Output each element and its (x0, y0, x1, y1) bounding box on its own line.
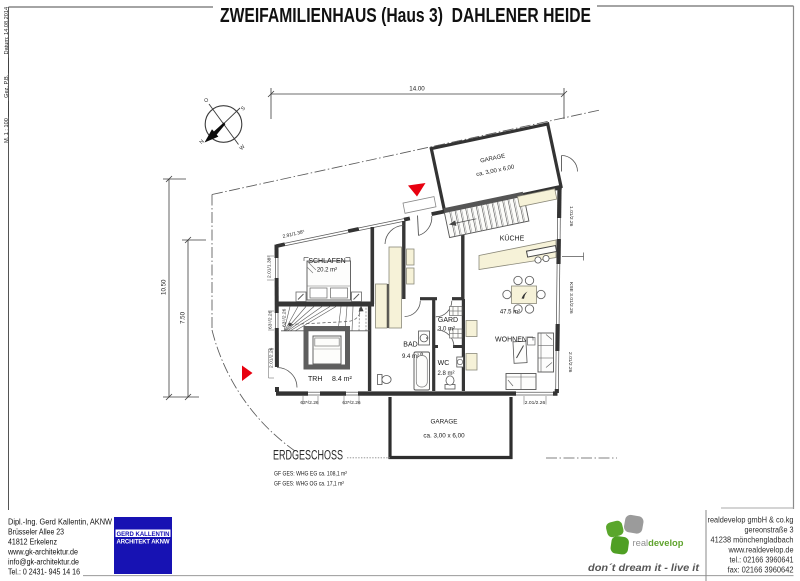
svg-text:47.5 m²: 47.5 m² (500, 310, 520, 316)
svg-text:www.realdevelop.de: www.realdevelop.de (728, 546, 794, 555)
svg-text:SCHLAFEN: SCHLAFEN (308, 258, 345, 265)
svg-text:ca. 3,00 x 6,00: ca. 3,00 x 6,00 (423, 433, 465, 440)
svg-text:realdevelop: realdevelop (633, 538, 684, 549)
svg-text:2.01/2.26: 2.01/2.26 (268, 347, 274, 368)
svg-text:41238 mönchengladbach: 41238 mönchengladbach (711, 536, 794, 545)
svg-text:info@gk-architektur.de: info@gk-architektur.de (8, 558, 79, 567)
svg-text:WC: WC (438, 360, 450, 367)
svg-text:63⁵/2.26: 63⁵/2.26 (342, 400, 361, 406)
svg-text:ARCHITEKT AKNW: ARCHITEKT AKNW (117, 540, 170, 546)
svg-text:2.01/2.26: 2.01/2.26 (525, 400, 546, 406)
svg-text:8.4 m²: 8.4 m² (332, 376, 353, 383)
svg-text:20.2 m²: 20.2 m² (317, 268, 337, 274)
svg-text:M. 1 : 100 _____ Gez. P.B. __: M. 1 : 100 _____ Gez. P.B. _____ Datum: … (4, 7, 10, 143)
svg-text:tel.: 02166 3960641: tel.: 02166 3960641 (730, 556, 794, 565)
svg-text:3.0 m²: 3.0 m² (438, 327, 455, 333)
svg-text:GARD: GARD (438, 317, 458, 324)
svg-text:14.00: 14.00 (409, 86, 425, 93)
svg-text:1.01/2.26: 1.01/2.26 (568, 206, 574, 227)
svg-text:Tel.: 0 2431- 945 14 16: Tel.: 0 2431- 945 14 16 (8, 568, 80, 577)
svg-text:63⁵/2.26: 63⁵/2.26 (267, 310, 273, 329)
svg-text:2.01/2.26: 2.01/2.26 (567, 352, 573, 373)
svg-text:2.01/1.38⁵: 2.01/1.38⁵ (266, 256, 272, 278)
svg-text:ERDGESCHOSS: ERDGESCHOSS (273, 448, 343, 463)
svg-text:realdevelop gmbH & co.kg: realdevelop gmbH & co.kg (708, 516, 794, 525)
svg-text:Brüsseler Allee 23: Brüsseler Allee 23 (8, 528, 64, 537)
svg-text:GF GES: WHG EG ca. 108,1 m²: GF GES: WHG EG ca. 108,1 m² (274, 471, 348, 478)
svg-text:KSE 3.01/2.26: KSE 3.01/2.26 (568, 282, 574, 314)
svg-text:BAD: BAD (403, 342, 417, 349)
svg-text:9.4 m²: 9.4 m² (402, 354, 419, 360)
svg-text:gereonstraße 3: gereonstraße 3 (745, 526, 794, 535)
svg-text:www.gk-architektur.de: www.gk-architektur.de (7, 548, 78, 557)
svg-text:KÜCHE: KÜCHE (500, 235, 525, 243)
svg-text:2.8 m²: 2.8 m² (437, 371, 454, 377)
svg-text:WOHNEN: WOHNEN (495, 337, 527, 344)
svg-text:41812 Erkelenz: 41812 Erkelenz (8, 538, 57, 547)
svg-text:7.50: 7.50 (180, 311, 187, 324)
svg-text:63⁵/2.26: 63⁵/2.26 (282, 308, 288, 327)
svg-text:Dipl.-Ing. Gerd Kallentin, AKN: Dipl.-Ing. Gerd Kallentin, AKNW (8, 518, 112, 527)
svg-text:don´t dream it - live it: don´t dream it - live it (588, 563, 700, 574)
svg-text:ZWEIFAMILIENHAUS (Haus 3) DAH: ZWEIFAMILIENHAUS (Haus 3) DAHLENER HEIDE (220, 4, 591, 27)
svg-text:GERD KALLENTIN: GERD KALLENTIN (117, 532, 170, 538)
svg-text:10.50: 10.50 (161, 279, 168, 295)
svg-text:GARAGE: GARAGE (431, 419, 458, 426)
svg-text:GF GES: WHG OG ca. 17,1 m²: GF GES: WHG OG ca. 17,1 m² (274, 481, 345, 488)
svg-text:fax: 02166 3960642: fax: 02166 3960642 (728, 566, 795, 575)
svg-text:TRH: TRH (308, 376, 322, 383)
